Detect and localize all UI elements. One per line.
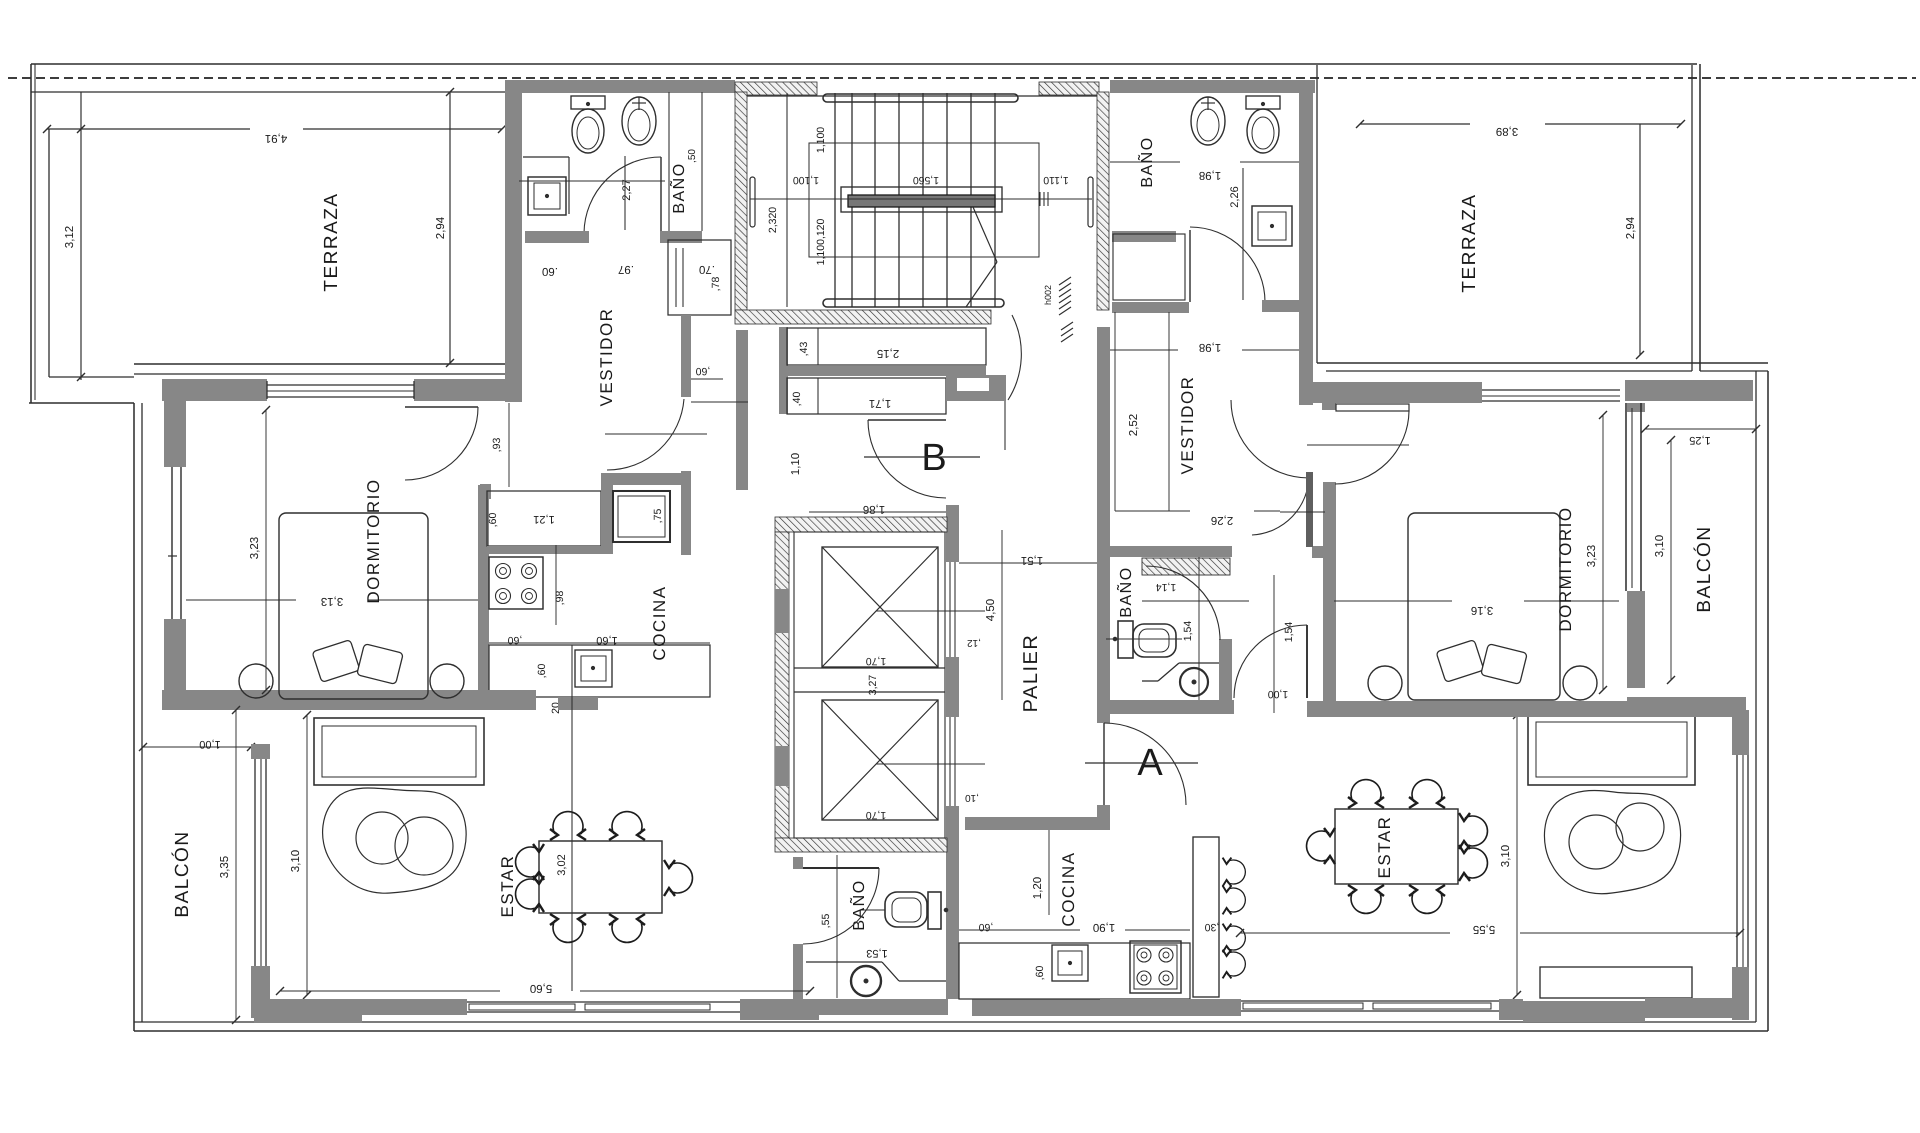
- svg-text:h002: h002: [1043, 285, 1053, 305]
- svg-text:2,94: 2,94: [1625, 216, 1637, 239]
- svg-text:PALIER: PALIER: [1020, 634, 1042, 713]
- svg-text:,78: ,78: [710, 277, 722, 292]
- svg-text:DORMITORIO: DORMITORIO: [364, 478, 383, 603]
- svg-text:,40: ,40: [791, 392, 803, 407]
- svg-text:COCINA: COCINA: [650, 585, 669, 660]
- svg-text:,55: ,55: [820, 914, 832, 929]
- svg-text:,60: ,60: [536, 664, 548, 679]
- svg-text:1,100: 1,100: [815, 127, 827, 153]
- svg-text:5,55: 5,55: [1473, 923, 1495, 935]
- svg-text:2,94: 2,94: [435, 216, 447, 239]
- svg-text:B: B: [921, 437, 946, 479]
- svg-text:1,71: 1,71: [869, 397, 891, 409]
- svg-text:,30: ,30: [1205, 921, 1220, 933]
- svg-text:1,00: 1,00: [199, 738, 220, 750]
- svg-text:BAÑO: BAÑO: [669, 162, 688, 213]
- svg-text:1,98: 1,98: [1199, 169, 1221, 181]
- svg-text:3,35: 3,35: [219, 856, 231, 878]
- svg-text:VESTIDOR: VESTIDOR: [597, 308, 616, 407]
- svg-text:1,110: 1,110: [1043, 174, 1069, 186]
- svg-text:,50: ,50: [687, 149, 698, 163]
- svg-text:1,70: 1,70: [866, 655, 887, 667]
- svg-text:,75: ,75: [652, 509, 664, 524]
- svg-text:1,14: 1,14: [1156, 581, 1177, 593]
- svg-text:1,60: 1,60: [596, 634, 617, 646]
- svg-text:VESTIDOR: VESTIDOR: [1178, 376, 1197, 475]
- svg-text:3,13: 3,13: [321, 595, 343, 607]
- svg-text:1,100: 1,100: [793, 174, 819, 186]
- svg-text:ESTAR: ESTAR: [1375, 816, 1394, 879]
- svg-text:3,12: 3,12: [64, 226, 76, 248]
- svg-text:DORMITORIO: DORMITORIO: [1556, 506, 1575, 631]
- svg-text:BALCÓN: BALCÓN: [171, 830, 193, 917]
- svg-text:,60: ,60: [696, 365, 711, 377]
- svg-text:3,23: 3,23: [249, 537, 261, 559]
- svg-text:2,27: 2,27: [621, 179, 633, 200]
- svg-text:2,320: 2,320: [767, 207, 779, 233]
- svg-text:3,10: 3,10: [290, 850, 302, 872]
- svg-text:1,560: 1,560: [913, 174, 939, 186]
- svg-text:,93: ,93: [491, 438, 503, 453]
- svg-text:3,23: 3,23: [1586, 545, 1598, 567]
- svg-text:ESTAR: ESTAR: [498, 855, 517, 918]
- svg-text:,43: ,43: [798, 342, 810, 357]
- svg-text:COCINA: COCINA: [1059, 851, 1078, 926]
- svg-text:4,91: 4,91: [265, 132, 287, 144]
- svg-text:,60: ,60: [508, 634, 523, 646]
- svg-text:5,60: 5,60: [530, 982, 552, 994]
- svg-text:3,16: 3,16: [1471, 604, 1493, 616]
- svg-text:1,54: 1,54: [1182, 621, 1194, 642]
- svg-text:4,50: 4,50: [985, 599, 997, 621]
- svg-text:1,90: 1,90: [1093, 921, 1115, 933]
- svg-text:1,20: 1,20: [1032, 877, 1044, 899]
- svg-text:,60: ,60: [979, 921, 994, 933]
- svg-text:BAÑO: BAÑO: [849, 879, 868, 930]
- svg-text:3,89: 3,89: [1496, 125, 1518, 137]
- svg-text:2,52: 2,52: [1128, 414, 1140, 436]
- svg-text:TERRAZA: TERRAZA: [321, 192, 342, 291]
- svg-text:.60: .60: [542, 265, 558, 277]
- svg-text:2,15: 2,15: [877, 347, 899, 359]
- svg-text:1,98: 1,98: [1199, 341, 1221, 353]
- svg-text:,12: ,12: [967, 637, 981, 648]
- svg-text:1,53: 1,53: [866, 947, 887, 959]
- svg-text:3,10: 3,10: [1654, 535, 1666, 557]
- svg-text:3,27: 3,27: [867, 675, 879, 696]
- svg-text:,10: ,10: [965, 792, 979, 803]
- svg-text:1,51: 1,51: [1021, 554, 1043, 566]
- svg-text:2,26: 2,26: [1211, 514, 1233, 526]
- svg-text:3,02: 3,02: [556, 854, 568, 875]
- svg-text:1,25: 1,25: [1689, 434, 1710, 446]
- svg-text:1,00: 1,00: [1268, 688, 1289, 700]
- svg-text:1,21: 1,21: [533, 513, 554, 525]
- svg-text:1,70: 1,70: [866, 809, 887, 821]
- svg-text:1,86: 1,86: [863, 503, 885, 515]
- svg-text:1,10: 1,10: [790, 453, 802, 475]
- svg-text:3,10: 3,10: [1500, 845, 1512, 867]
- svg-text:.97: .97: [618, 263, 634, 275]
- svg-text:BALCÓN: BALCÓN: [1693, 525, 1715, 612]
- svg-text:.70: .70: [699, 263, 715, 275]
- svg-text:1,54: 1,54: [1283, 622, 1295, 643]
- svg-text:2,26: 2,26: [1229, 186, 1241, 207]
- svg-text:,60: ,60: [487, 513, 499, 528]
- svg-text:TERRAZA: TERRAZA: [1459, 193, 1480, 292]
- svg-text:BAÑO: BAÑO: [1116, 566, 1135, 617]
- svg-text:,60: ,60: [1034, 966, 1046, 981]
- svg-text:1,100,120: 1,100,120: [815, 218, 827, 265]
